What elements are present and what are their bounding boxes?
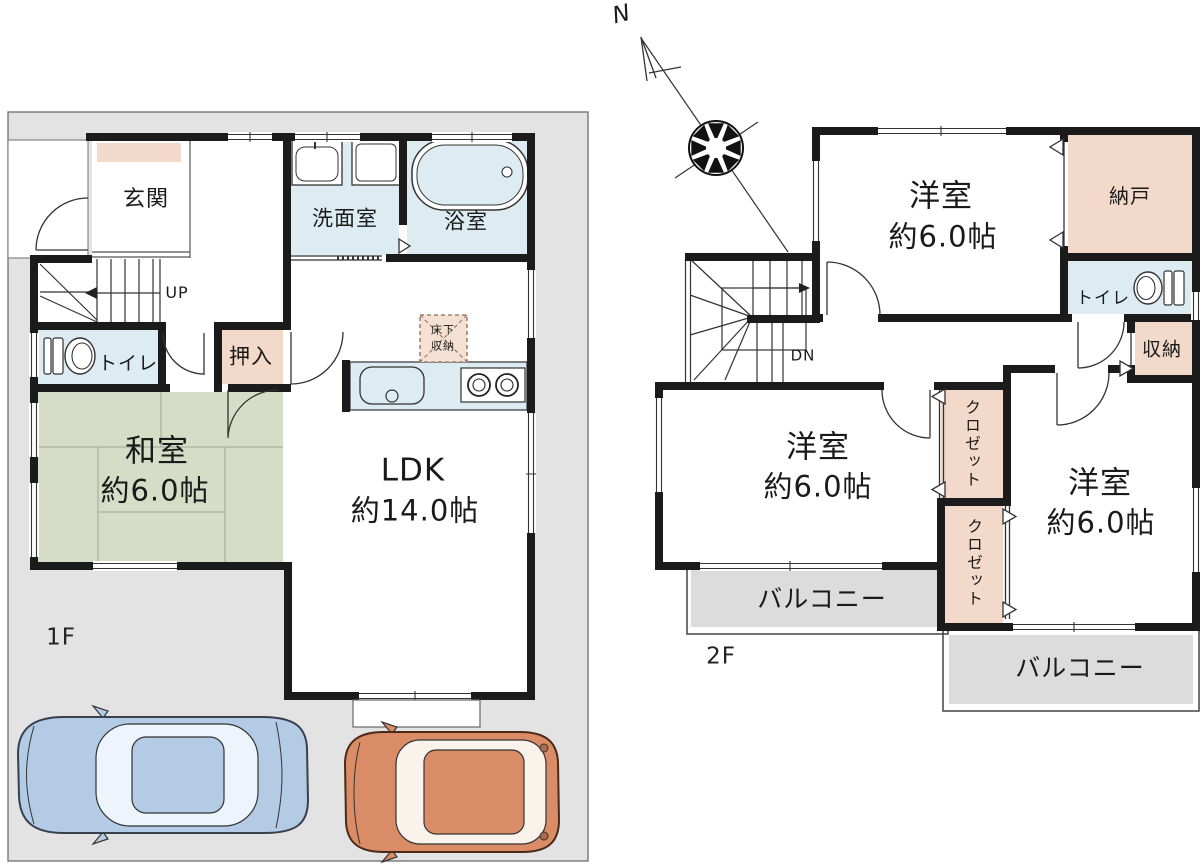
label-bedroom-right-size: 約6.0帖: [1046, 509, 1155, 538]
label-yukashita-2: 収納: [431, 341, 455, 352]
label-washitsu-name: 和室: [125, 437, 189, 468]
underfloor-storage: [420, 315, 467, 362]
label-bedroom-top-size: 約6.0帖: [888, 223, 997, 252]
genkan-mat: [97, 143, 181, 162]
label-senmenshitsu: 洗面室: [312, 209, 378, 230]
label-toilet-1f: トイレ: [98, 355, 158, 374]
label-bedroom-right-name: 洋室: [1068, 469, 1132, 500]
car-orange: [345, 722, 559, 862]
label-floor1: 1F: [46, 627, 76, 650]
floor-plan-page: 玄関 洗面室 浴室 UP トイレ 押入 和室 約6.0帖 LDK 約14.0帖 …: [0, 0, 1200, 868]
washing-machine-icon: [352, 140, 400, 185]
label-oshiire: 押入: [229, 347, 273, 368]
compass-icon: [641, 37, 788, 252]
label-closet-bottom: クロゼット: [965, 518, 981, 608]
label-nando: 納戸: [1109, 186, 1151, 206]
label-ldk-size: 約14.0帖: [351, 497, 480, 526]
bathtub-icon: [412, 140, 528, 210]
label-balcony-left: バルコニー: [757, 587, 887, 612]
floor1-plan: [8, 112, 588, 862]
label-genkan: 玄関: [123, 189, 169, 211]
label-washitsu-size: 約6.0帖: [100, 477, 209, 506]
label-bedroom-mid-name: 洋室: [786, 433, 850, 464]
label-bedroom-mid-size: 約6.0帖: [763, 473, 872, 502]
label-stairs-up: UP: [165, 285, 188, 301]
label-stairs-down: DN: [791, 349, 816, 364]
vanity-sink-icon: [292, 140, 342, 185]
label-balcony-right: バルコニー: [1015, 656, 1145, 681]
ldk-porch-step: [353, 700, 480, 727]
label-bedroom-top-name: 洋室: [909, 182, 973, 213]
stove-icon: [461, 368, 525, 402]
label-yokushitsu: 浴室: [444, 212, 488, 233]
label-closet-top: クロゼット: [963, 399, 979, 489]
car-blue: [18, 706, 308, 844]
label-shuno: 収納: [1142, 341, 1182, 360]
label-toilet-2f: トイレ: [1076, 291, 1130, 308]
label-ldk-name: LDK: [381, 456, 445, 487]
label-floor2: 2F: [706, 646, 736, 669]
label-yukashita-1: 床下: [431, 325, 455, 336]
